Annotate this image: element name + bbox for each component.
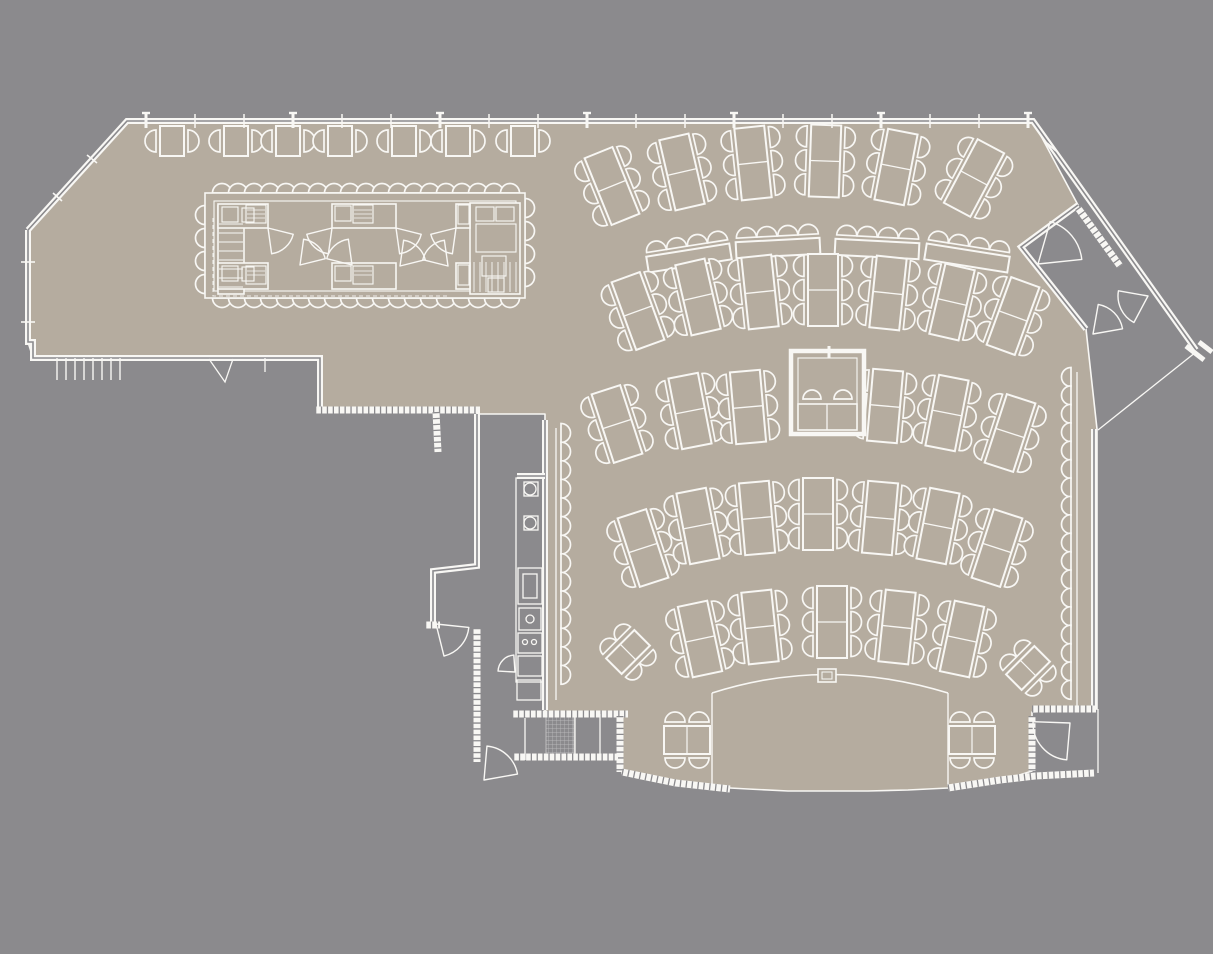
table-2-seat	[224, 126, 248, 156]
table-with-chairs	[803, 586, 862, 658]
service-booth	[791, 346, 864, 434]
table-2-seat	[276, 126, 300, 156]
table-with-chairs	[794, 254, 853, 326]
table-with-chairs	[860, 126, 932, 208]
bar-island	[196, 183, 535, 307]
island-counter	[332, 204, 396, 228]
table-with-chairs	[431, 126, 485, 156]
table-with-chairs	[209, 126, 263, 156]
floor-mat	[546, 714, 574, 759]
table-with-chairs	[654, 370, 726, 452]
table-with-chairs	[720, 124, 786, 202]
table-with-chairs	[715, 369, 780, 446]
table-with-chairs	[662, 485, 734, 567]
table-2-seat	[446, 126, 470, 156]
table-with-chairs	[902, 485, 974, 567]
table-2-seat	[511, 126, 535, 156]
table-2-seat	[328, 126, 352, 156]
table-with-chairs	[145, 126, 199, 156]
floor-plan-drawing	[0, 0, 1213, 954]
table-with-chairs	[789, 478, 848, 550]
table-with-chairs	[727, 588, 793, 666]
table-with-chairs	[864, 588, 930, 666]
island-counter	[332, 263, 396, 289]
table-with-chairs	[794, 124, 855, 198]
table-with-chairs	[911, 372, 983, 454]
table-with-chairs	[727, 253, 793, 331]
table-with-chairs	[855, 254, 921, 332]
table-with-chairs	[377, 126, 431, 156]
floor-plan-page	[0, 0, 1213, 954]
table-2-seat	[160, 126, 184, 156]
island-counter	[470, 203, 520, 294]
podium	[818, 669, 836, 682]
table-with-chairs	[724, 480, 789, 557]
table-with-chairs	[847, 480, 912, 557]
table-2-seat	[392, 126, 416, 156]
table-with-chairs	[313, 126, 367, 156]
table-with-chairs	[496, 126, 550, 156]
table-with-chairs	[261, 126, 315, 156]
